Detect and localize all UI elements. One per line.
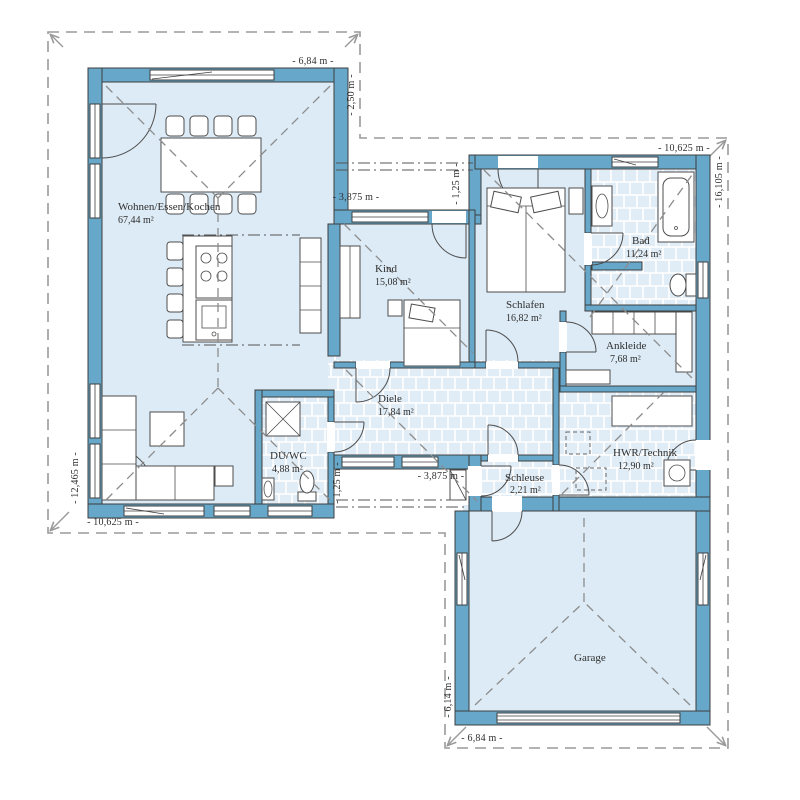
window	[342, 457, 394, 467]
room-label-duwc: DU/WC	[270, 450, 307, 462]
bathtub	[658, 172, 694, 242]
garage-door	[497, 713, 680, 723]
floor-diele	[328, 360, 557, 459]
room-area-ankleide: 7,68 m²	[610, 354, 641, 365]
dim-porch-top-height: - 1,25 m -	[451, 163, 462, 204]
room-label-garage: Garage	[574, 652, 606, 664]
window	[457, 553, 467, 605]
room-area-hwr: 12,90 m²	[618, 461, 654, 472]
dim-garage-width: - 6,84 m -	[461, 733, 502, 744]
bathroom-sink	[592, 186, 612, 226]
dim-left-height: - 12,465 m -	[70, 452, 81, 504]
dim-top-right-width: - 10,625 m -	[658, 143, 710, 154]
room-label-kind: Kind	[375, 263, 398, 275]
dim-porch-bottom-width: - 3,875 m -	[418, 471, 465, 482]
bad-knee-wall	[592, 262, 642, 270]
room-label-schleuse: Schleuse	[505, 472, 544, 484]
window	[698, 262, 708, 298]
window	[150, 70, 274, 80]
window	[90, 164, 100, 218]
toilet	[670, 274, 696, 296]
floor-plan-svg: Wohnen/Essen/Kochen 67,44 m² Kind 15,08 …	[0, 0, 800, 800]
window	[402, 457, 438, 467]
dim-garage-height: - 6,14 m -	[443, 676, 454, 717]
window	[612, 157, 658, 167]
room-label-diele: Diele	[378, 393, 402, 405]
window	[90, 104, 100, 158]
window	[352, 212, 428, 222]
window	[698, 553, 708, 605]
window	[124, 506, 204, 516]
room-area-bad: 11,24 m²	[626, 249, 661, 260]
shower	[266, 402, 300, 436]
room-area-duwc: 4,88 m²	[272, 464, 303, 475]
kitchen-counter	[300, 238, 321, 333]
room-label-ankleide: Ankleide	[606, 340, 646, 352]
window	[90, 384, 100, 438]
wc-sink	[262, 478, 274, 500]
dim-bottom-left-width: - 10,625 m -	[87, 517, 139, 528]
room-area-schlafen: 16,82 m²	[506, 313, 542, 324]
room-area-wohnen: 67,44 m²	[118, 215, 154, 226]
room-label-hwr: HWR/Technik	[613, 447, 677, 459]
room-label-wohnen: Wohnen/Essen/Kochen	[118, 201, 221, 213]
room-label-schlafen: Schlafen	[506, 299, 545, 311]
room-area-kind: 15,08 m²	[375, 277, 411, 288]
dim-right-height: - 16,105 m -	[714, 156, 725, 208]
room-area-schleuse: 2,21 m²	[510, 485, 541, 496]
floor-plan: Wohnen/Essen/Kochen 67,44 m² Kind 15,08 …	[0, 0, 800, 800]
dim-porch-top-width: - 3,875 m -	[333, 192, 380, 203]
window	[214, 506, 250, 516]
room-label-bad: Bad	[632, 235, 650, 247]
floor-garage	[463, 505, 702, 717]
window	[90, 444, 100, 498]
dim-porch-bottom-height: - 1,25 m -	[332, 462, 343, 503]
dim-top-left-height: - 2,50 m -	[346, 74, 357, 115]
dim-top-left-width: - 6,84 m -	[292, 56, 333, 67]
room-area-diele: 17,84 m²	[378, 407, 414, 418]
window	[268, 506, 312, 516]
